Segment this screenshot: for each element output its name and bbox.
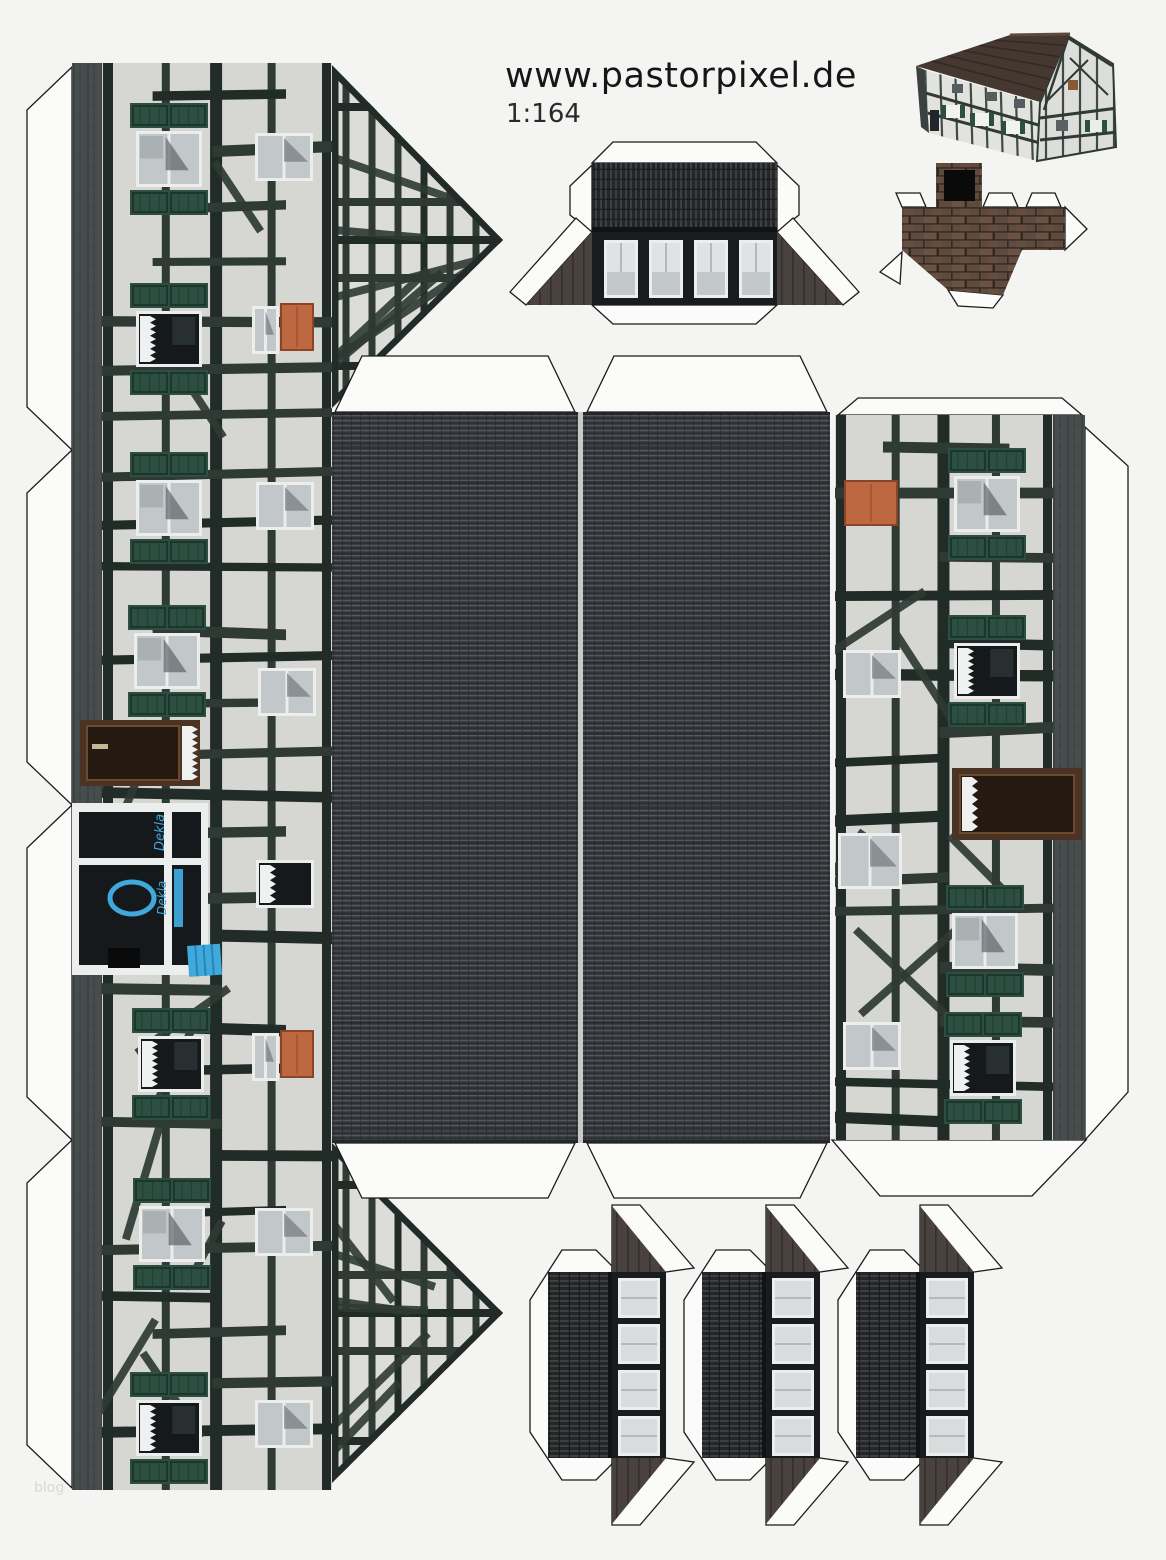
orange-door — [281, 1031, 313, 1077]
shuttered-window — [130, 283, 208, 395]
shop-awning — [187, 944, 222, 977]
orange-door — [845, 481, 897, 525]
dormer-window — [926, 1278, 968, 1318]
plain-window — [838, 833, 902, 889]
glue-tab — [1026, 193, 1061, 207]
plain-window — [255, 133, 313, 181]
shuttered-window — [944, 1012, 1022, 1124]
roof-panel-left — [332, 412, 578, 1143]
dormer-window — [926, 1324, 968, 1364]
glue-tab — [27, 805, 72, 1140]
plain-window — [843, 650, 901, 698]
shuttered-window — [132, 1008, 210, 1120]
papercraft-sheet-art: DeklaDekla — [0, 0, 1166, 1560]
dormer-window — [772, 1416, 814, 1456]
small-dormer-piece — [838, 1205, 1002, 1525]
dormer-window — [618, 1324, 660, 1364]
glue-tab — [1065, 207, 1087, 250]
glue-tab — [335, 356, 575, 412]
dormer-roof — [592, 163, 777, 232]
plain-window — [255, 1400, 313, 1448]
shuttered-window — [130, 452, 208, 564]
dormer-window — [649, 240, 683, 298]
dormer-roof — [702, 1272, 766, 1458]
plain-window — [843, 1022, 901, 1070]
roof-panel-right — [583, 412, 830, 1143]
shop-sign-text: Dekla — [155, 881, 169, 915]
shuttered-window — [128, 605, 206, 717]
plain-window — [256, 482, 314, 530]
dormer-window — [618, 1278, 660, 1318]
left-facade-tabs — [27, 67, 72, 1488]
orange-door — [281, 304, 313, 350]
glue-tab — [27, 67, 72, 450]
glue-tab — [880, 252, 902, 284]
plain-window — [258, 668, 316, 716]
glue-tab — [832, 1140, 1086, 1196]
dormer-window — [604, 240, 638, 298]
dormer-roof — [856, 1272, 920, 1458]
shuttered-window — [130, 1372, 208, 1484]
chimney-skirt — [902, 250, 1022, 295]
plain-window — [252, 306, 279, 354]
site-title: www.pastorpixel.de — [505, 56, 857, 96]
glue-tab — [1085, 427, 1128, 1140]
glue-tab — [587, 356, 827, 412]
scale-label: 1:164 — [506, 99, 581, 129]
dormer-window — [926, 1370, 968, 1410]
dormer-window — [694, 240, 728, 298]
chimney-piece — [880, 163, 1087, 308]
dormer-window — [772, 1324, 814, 1364]
assembled-house-preview — [916, 34, 1118, 170]
chimney-opening — [944, 170, 975, 201]
small-dormer-piece — [684, 1205, 848, 1525]
shuttered-window — [133, 1178, 211, 1290]
dormer-window — [926, 1416, 968, 1456]
watermark-text: blog — [34, 1480, 64, 1496]
dormer-window — [772, 1370, 814, 1410]
glue-tab — [838, 398, 1082, 415]
dormer-window — [772, 1278, 814, 1318]
small-dormer-piece — [530, 1205, 694, 1525]
plain-window — [252, 1033, 279, 1081]
large-dormer-piece — [510, 142, 859, 324]
roof-piece — [332, 356, 830, 1198]
glue-tab — [983, 193, 1018, 207]
papercraft-sheet: DeklaDekla www.pastorpixel.de 1:164 blog — [0, 0, 1166, 1560]
shop-front: DeklaDekla — [72, 720, 222, 977]
glue-tab — [27, 450, 72, 805]
glue-tab — [592, 305, 777, 324]
shop-small-sign — [108, 948, 140, 968]
shuttered-window — [948, 615, 1026, 727]
dormer-roof — [548, 1272, 612, 1458]
dormer-window — [618, 1416, 660, 1456]
plain-window — [255, 1208, 313, 1256]
plain-window — [256, 860, 314, 908]
glue-tab — [587, 1143, 827, 1198]
brown-door — [952, 768, 1082, 840]
dormer-window — [739, 240, 773, 298]
glue-tab — [27, 1140, 72, 1488]
glue-tab — [896, 193, 926, 207]
shop-door — [80, 720, 200, 786]
chimney-strip — [902, 207, 1065, 250]
shuttered-window — [946, 885, 1024, 997]
glue-tab — [592, 142, 777, 163]
dormer-window — [618, 1370, 660, 1410]
shop-sign-text: Dekla — [153, 814, 168, 851]
shuttered-window — [130, 103, 208, 215]
glue-tab — [335, 1143, 575, 1198]
shuttered-window — [948, 448, 1026, 560]
